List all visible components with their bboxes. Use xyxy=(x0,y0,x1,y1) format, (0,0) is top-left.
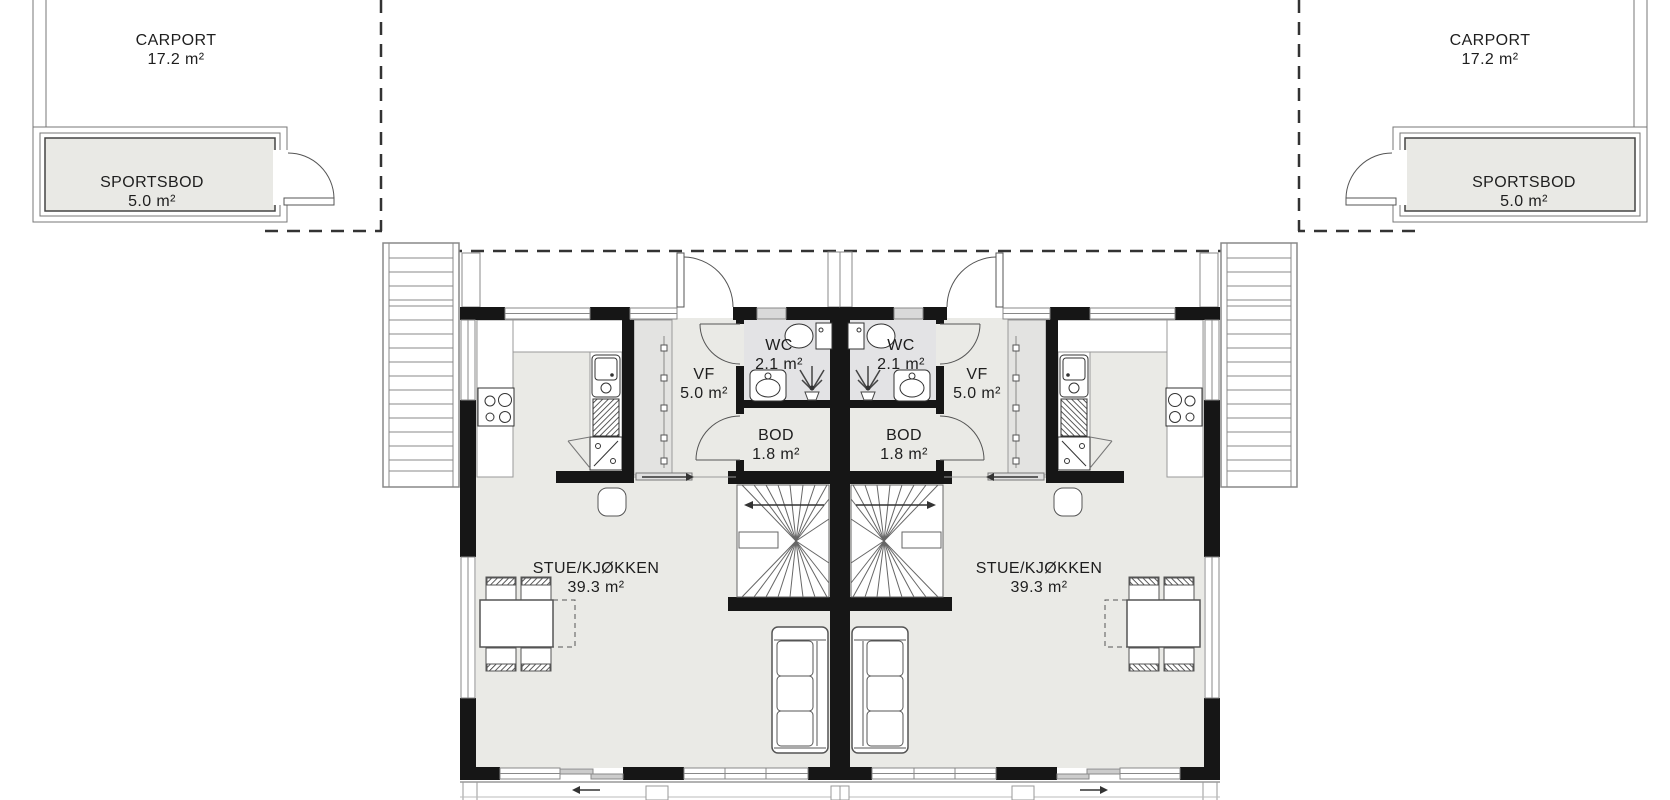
room-label-stue-right: STUE/KJØKKEN39.3 m² xyxy=(976,560,1103,598)
room-label-wc-left: WC2.1 m² xyxy=(755,337,803,375)
room-label-bod-left: BOD1.8 m² xyxy=(752,427,800,465)
room-label-sportsbod-right: SPORTSBOD5.0 m² xyxy=(1472,174,1576,212)
room-label-vf-left: VF5.0 m² xyxy=(680,366,728,404)
room-label-wc-right: WC2.1 m² xyxy=(877,337,925,375)
floorplan-page: CARPORT17.2 m² CARPORT17.2 m² SPORTSBOD5… xyxy=(0,0,1670,800)
room-label-carport-right: CARPORT17.2 m² xyxy=(1450,32,1531,70)
room-label-vf-right: VF5.0 m² xyxy=(953,366,1001,404)
room-label-carport-left: CARPORT17.2 m² xyxy=(136,32,217,70)
room-label-stue-left: STUE/KJØKKEN39.3 m² xyxy=(533,560,660,598)
room-label-sportsbod-left: SPORTSBOD5.0 m² xyxy=(100,174,204,212)
floor-plan-drawing xyxy=(0,0,1670,800)
room-label-bod-right: BOD1.8 m² xyxy=(880,427,928,465)
